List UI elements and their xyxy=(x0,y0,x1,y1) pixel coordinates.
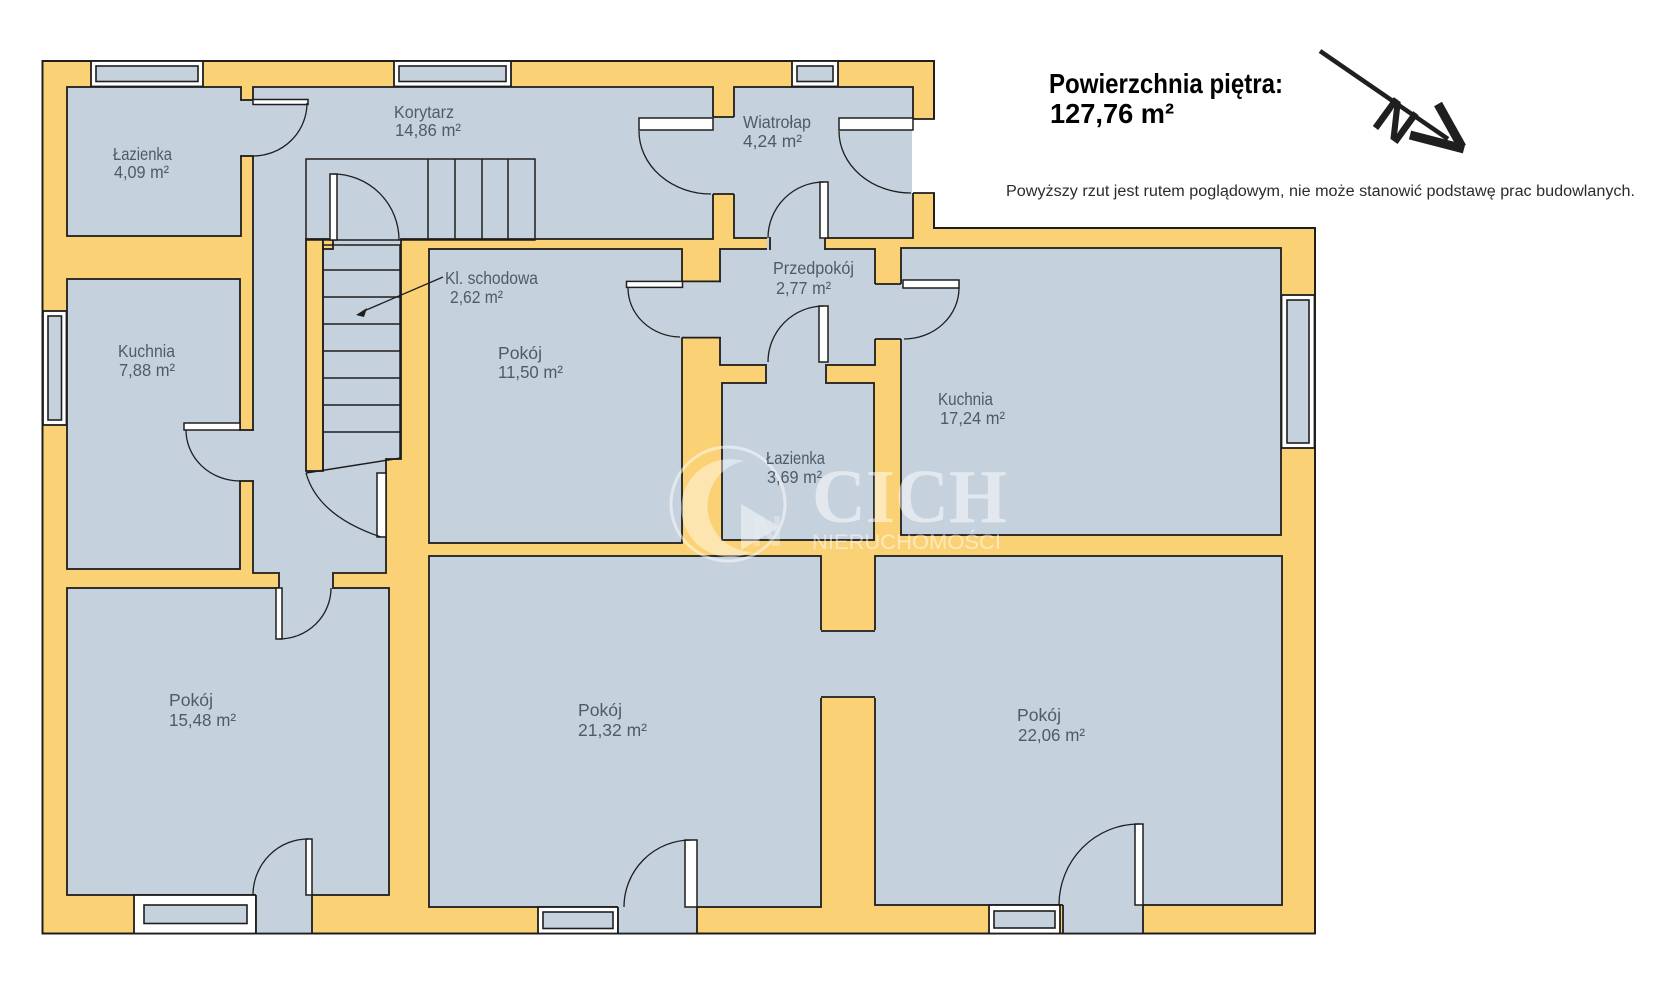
svg-text:N: N xyxy=(751,507,783,556)
svg-text:4,24 m²: 4,24 m² xyxy=(743,131,802,151)
svg-text:22,06 m²: 22,06 m² xyxy=(1018,725,1085,745)
svg-text:Pokój: Pokój xyxy=(578,700,622,720)
svg-text:NIERUCHOMOŚCI: NIERUCHOMOŚCI xyxy=(812,529,1001,554)
svg-text:Korytarz: Korytarz xyxy=(394,102,454,122)
svg-text:2,62 m²: 2,62 m² xyxy=(450,287,503,307)
svg-text:11,50 m²: 11,50 m² xyxy=(498,362,563,382)
svg-text:Pokój: Pokój xyxy=(1017,705,1061,725)
svg-text:17,24 m²: 17,24 m² xyxy=(940,408,1005,428)
svg-text:2,77 m²: 2,77 m² xyxy=(776,278,831,298)
svg-text:Powierzchnia piętra:: Powierzchnia piętra: xyxy=(1049,68,1283,99)
svg-text:127,76 m²: 127,76 m² xyxy=(1050,98,1174,129)
svg-text:Pokój: Pokój xyxy=(169,690,213,710)
svg-text:Powyższy rzut jest rutem poglą: Powyższy rzut jest rutem poglądowym, nie… xyxy=(1006,183,1635,200)
svg-text:7,88 m²: 7,88 m² xyxy=(119,360,175,380)
svg-text:Przedpokój: Przedpokój xyxy=(773,258,854,278)
svg-text:Kuchnia: Kuchnia xyxy=(118,341,175,361)
svg-text:Kl. schodowa: Kl. schodowa xyxy=(445,268,538,288)
svg-text:Pokój: Pokój xyxy=(498,343,542,363)
svg-text:14,86 m²: 14,86 m² xyxy=(395,120,461,140)
svg-text:21,32 m²: 21,32 m² xyxy=(578,720,647,740)
svg-text:3,69 m²: 3,69 m² xyxy=(767,467,822,487)
svg-text:Łazienka: Łazienka xyxy=(113,144,172,164)
svg-text:Kuchnia: Kuchnia xyxy=(938,389,993,409)
svg-text:15,48 m²: 15,48 m² xyxy=(169,710,236,730)
svg-text:Łazienka: Łazienka xyxy=(766,448,825,468)
svg-text:4,09 m²: 4,09 m² xyxy=(114,162,169,182)
svg-text:CICH: CICH xyxy=(812,455,1007,539)
svg-text:Wiatrołap: Wiatrołap xyxy=(743,112,811,132)
